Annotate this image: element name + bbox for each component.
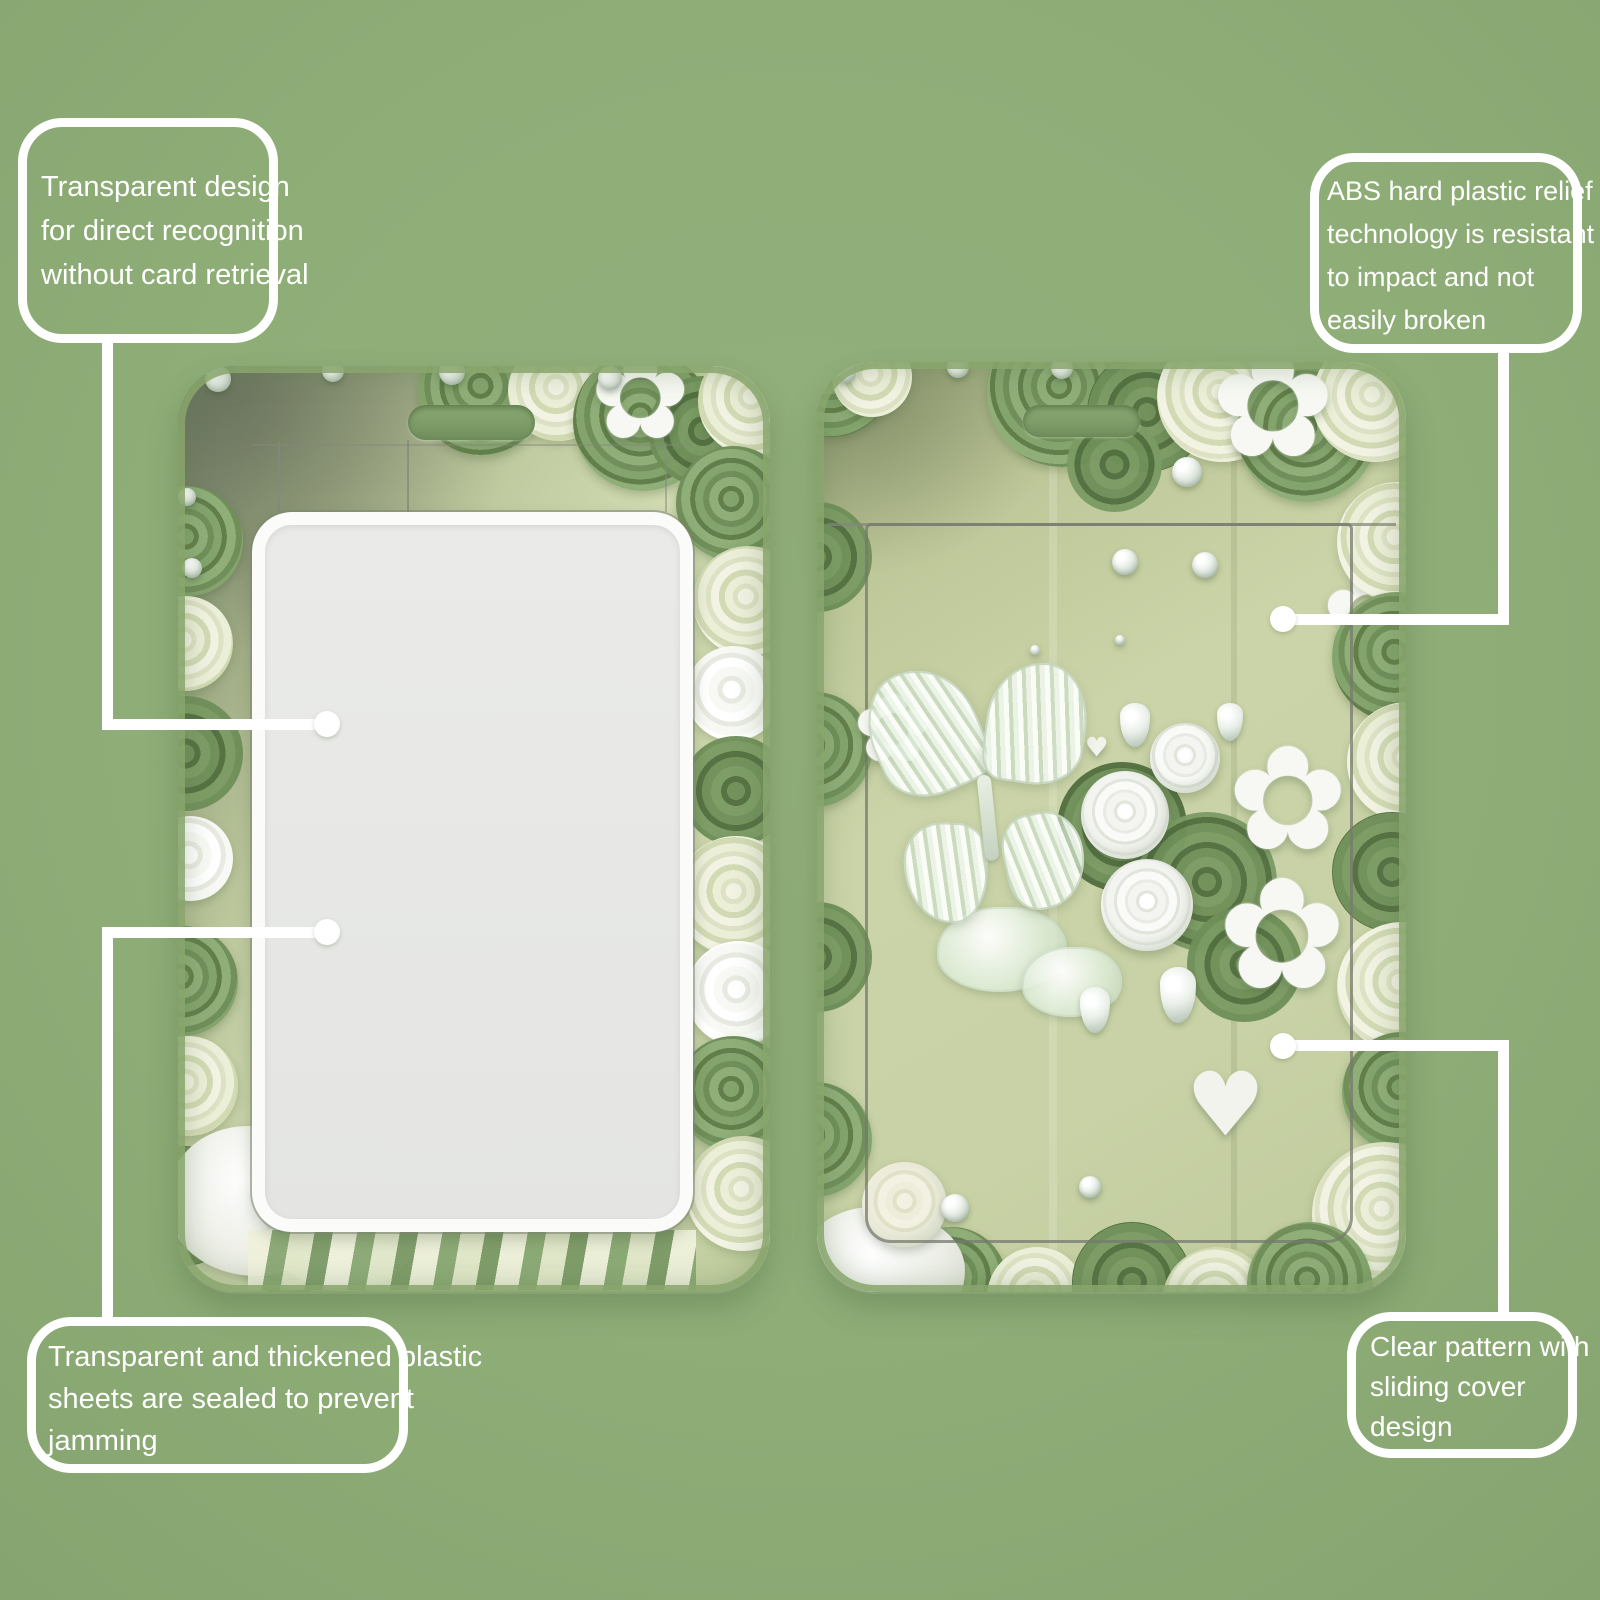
pearl-icon [1192, 552, 1218, 578]
swirl-decoration [817, 902, 872, 1012]
lanyard-slot [408, 405, 535, 440]
pearl-icon [205, 366, 231, 392]
pearl-heart-icon: ♥ [1186, 1061, 1265, 1149]
card-holder-back-view: ✿ ✿ [817, 362, 1406, 1292]
seam-line [665, 442, 667, 512]
swirl-decoration [178, 696, 243, 811]
callout-text: jamming [48, 1420, 399, 1462]
callout-text: without card retrieval [41, 253, 269, 297]
swirl-decoration [817, 502, 872, 612]
connector-line [1283, 1040, 1509, 1051]
connector-line [102, 927, 327, 938]
callout-text: Transparent and thickened plastic [48, 1336, 399, 1378]
connector-line [102, 927, 113, 1322]
rose-icon [1101, 859, 1193, 951]
seam-line [278, 442, 280, 512]
swirl-decoration [178, 596, 233, 691]
pearl-icon [182, 558, 202, 578]
pearl-icon [834, 362, 856, 383]
connector-line [1498, 348, 1509, 625]
frosting-rose-icon [686, 941, 770, 1046]
callout-sliding-cover: Clear pattern with sliding cover design [1347, 1312, 1577, 1458]
pearl-icon [1030, 645, 1040, 655]
butterfly-icon [864, 651, 1106, 928]
pearl-icon [1112, 549, 1138, 575]
butterfly-wing [978, 656, 1094, 791]
connector-line [1498, 1040, 1509, 1315]
connector-dot [314, 711, 340, 737]
frosting-rose-icon [686, 646, 770, 741]
pearl-icon [947, 362, 969, 378]
callout-text: sheets are sealed to prevent [48, 1378, 399, 1420]
callout-transparent-design: Transparent design for direct recognitio… [18, 118, 278, 343]
connector-line [102, 340, 113, 730]
frosting-stripe-band [248, 1230, 696, 1290]
swirl-decoration [1347, 702, 1406, 822]
connector-line [1283, 614, 1509, 625]
callout-text: design [1370, 1407, 1568, 1447]
pearl-icon [1172, 457, 1202, 487]
pearl-icon [322, 366, 344, 382]
callout-text: technology is resistant [1327, 213, 1573, 256]
callout-sealed-sheets: Transparent and thickened plastic sheets… [27, 1317, 408, 1473]
connector-dot [1270, 1033, 1296, 1059]
swirl-decoration [681, 736, 770, 846]
swirl-decoration [178, 1036, 238, 1136]
swirl-decoration [693, 546, 770, 656]
callout-text: sliding cover [1370, 1367, 1568, 1407]
swirl-decoration [686, 1136, 770, 1251]
pearl-icon [941, 1194, 969, 1222]
photo-window [252, 512, 693, 1232]
seam-line [407, 440, 409, 512]
rose-icon [1150, 723, 1220, 793]
connector-dot [314, 919, 340, 945]
seam-line [252, 444, 692, 446]
pearl-icon [598, 366, 622, 390]
callout-text: ABS hard plastic relief [1327, 170, 1573, 213]
callout-text: Transparent design [41, 165, 269, 209]
connector-dot [1270, 606, 1296, 632]
card-holder-front-view: ✿ [178, 366, 770, 1292]
callout-text: Clear pattern with [1370, 1327, 1568, 1367]
frosting-rose-icon [178, 816, 233, 901]
flower-icon: ✿ [1210, 362, 1336, 480]
pearl-icon [1115, 635, 1125, 645]
connector-line [102, 719, 327, 730]
flower-icon: ✿ [1217, 857, 1347, 1012]
product-infographic: ✿ [0, 0, 1600, 1600]
butterfly-wing [902, 821, 989, 924]
pearl-icon [178, 488, 196, 506]
swirl-decoration [817, 1082, 872, 1197]
callout-text: to impact and not [1327, 256, 1573, 299]
callout-text: easily broken [1327, 299, 1573, 342]
callout-text: for direct recognition [41, 209, 269, 253]
lanyard-slot [1023, 405, 1140, 437]
swirl-decoration [178, 926, 238, 1036]
butterfly-wing [996, 805, 1094, 916]
callout-abs-plastic: ABS hard plastic relief technology is re… [1310, 153, 1582, 353]
pearl-icon [1079, 1176, 1101, 1198]
